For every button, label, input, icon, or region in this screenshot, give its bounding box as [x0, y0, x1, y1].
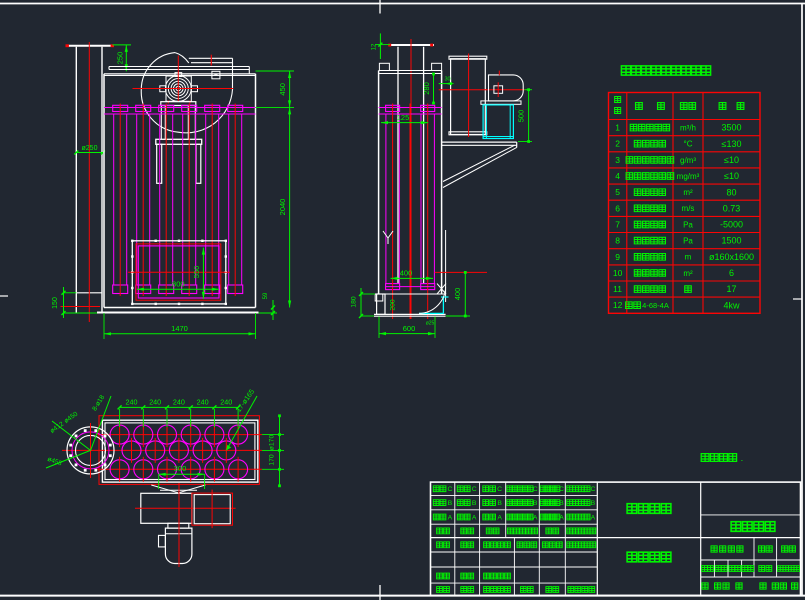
svg-text:B: B [448, 500, 453, 507]
svg-text:450: 450 [278, 83, 287, 96]
svg-text:240: 240 [197, 397, 209, 406]
svg-text:≤130: ≤130 [722, 139, 742, 149]
svg-text:C: C [533, 486, 538, 493]
svg-text:600: 600 [403, 324, 416, 333]
svg-text:A: A [533, 514, 538, 521]
svg-text:2040: 2040 [278, 199, 287, 216]
svg-text:0.73: 0.73 [723, 203, 741, 213]
svg-text:B: B [591, 500, 596, 507]
svg-text:80: 80 [726, 187, 736, 197]
svg-text:m: m [685, 253, 692, 262]
svg-text:C: C [559, 486, 564, 493]
svg-text:m³/h: m³/h [680, 124, 696, 133]
svg-text:3500: 3500 [721, 123, 741, 133]
svg-text:ø250: ø250 [82, 145, 98, 152]
svg-text:280: 280 [422, 82, 431, 95]
svg-text:ø170: ø170 [269, 435, 276, 451]
svg-text:6: 6 [615, 203, 620, 213]
svg-text:30: 30 [444, 77, 450, 83]
svg-text:A: A [448, 514, 453, 521]
svg-text:6: 6 [729, 268, 734, 278]
svg-text:5: 5 [615, 187, 620, 197]
svg-text:m²: m² [683, 188, 693, 197]
svg-text:A: A [472, 514, 477, 521]
svg-text:m²: m² [683, 269, 693, 278]
svg-text:17: 17 [726, 284, 736, 294]
svg-text:A: A [559, 514, 564, 521]
svg-text:400: 400 [453, 288, 462, 301]
svg-text:12: 12 [371, 43, 377, 50]
svg-text:B: B [472, 500, 477, 507]
svg-text:≤10: ≤10 [724, 155, 739, 165]
svg-text:200: 200 [390, 299, 397, 311]
svg-text:C: C [447, 486, 452, 493]
svg-text:-5000: -5000 [720, 220, 743, 230]
svg-text:240: 240 [126, 397, 138, 406]
svg-text:500: 500 [517, 110, 526, 123]
svg-text:Pa: Pa [683, 237, 693, 246]
svg-text:1: 1 [615, 123, 620, 133]
svg-text:240: 240 [149, 397, 161, 406]
svg-text:C: C [497, 486, 502, 493]
svg-text:4kw: 4kw [723, 300, 740, 310]
svg-text:9: 9 [615, 252, 620, 262]
svg-text:g/m³: g/m³ [680, 156, 696, 165]
svg-text:1500: 1500 [721, 236, 741, 246]
svg-text:C: C [590, 486, 595, 493]
svg-text:B: B [559, 500, 564, 507]
svg-text:7: 7 [615, 220, 620, 230]
svg-text:1470: 1470 [171, 324, 188, 333]
svg-text:300: 300 [174, 464, 187, 473]
svg-text:170: 170 [269, 454, 276, 466]
svg-text:4: 4 [615, 171, 620, 181]
svg-text:Pa: Pa [683, 220, 693, 229]
svg-text:4-68-4A: 4-68-4A [642, 301, 669, 310]
svg-text:m/s: m/s [682, 204, 695, 213]
svg-text:≤10: ≤10 [724, 171, 739, 181]
svg-text:59: 59 [263, 292, 269, 299]
svg-text:3: 3 [615, 155, 620, 165]
svg-text:2: 2 [615, 139, 620, 149]
svg-text:125: 125 [397, 113, 410, 122]
svg-text:.: . [741, 453, 744, 463]
svg-text:B: B [497, 500, 502, 507]
svg-text:12: 12 [613, 300, 623, 310]
svg-text:10: 10 [613, 268, 623, 278]
svg-text:mg/m³: mg/m³ [677, 172, 700, 181]
svg-text:ø25: ø25 [426, 321, 435, 327]
svg-text:11: 11 [613, 284, 622, 294]
svg-text:°C: °C [684, 140, 693, 149]
svg-text:250: 250 [116, 52, 125, 65]
svg-text:240: 240 [220, 397, 232, 406]
svg-text:ø160x1600: ø160x1600 [709, 252, 754, 262]
svg-text:A: A [497, 514, 502, 521]
svg-text:550: 550 [192, 266, 201, 279]
svg-text:B: B [533, 500, 538, 507]
svg-text:800: 800 [172, 280, 185, 289]
svg-text:A: A [591, 514, 596, 521]
svg-text:C: C [472, 486, 477, 493]
svg-text:150: 150 [52, 297, 59, 309]
svg-text:8: 8 [615, 236, 620, 246]
svg-text:180: 180 [351, 296, 358, 308]
svg-text:240: 240 [173, 397, 185, 406]
svg-text:400: 400 [400, 269, 413, 278]
